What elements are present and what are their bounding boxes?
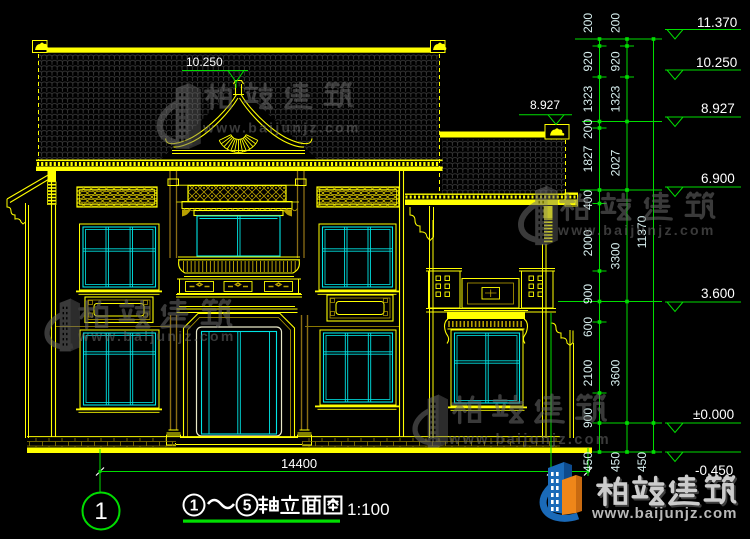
- svg-text:www.baijunjz.com: www.baijunjz.com: [202, 120, 361, 136]
- svg-text:450: 450: [609, 452, 623, 472]
- svg-text:1323: 1323: [581, 85, 595, 112]
- svg-text:3.600: 3.600: [701, 286, 735, 301]
- svg-text:3300: 3300: [609, 242, 623, 269]
- svg-text:11.370: 11.370: [697, 15, 737, 30]
- svg-text:±0.000: ±0.000: [693, 407, 734, 422]
- svg-text:1323: 1323: [609, 85, 623, 112]
- svg-text:www.baijunjz.com: www.baijunjz.com: [77, 328, 236, 344]
- svg-text:3600: 3600: [609, 359, 623, 386]
- svg-text:www.baijunjz.com: www.baijunjz.com: [591, 505, 737, 522]
- svg-text:200: 200: [581, 13, 595, 33]
- svg-text:1: 1: [190, 498, 199, 515]
- svg-text:1:100: 1:100: [347, 500, 390, 519]
- svg-text:8.927: 8.927: [701, 101, 735, 116]
- svg-text:450: 450: [581, 452, 595, 472]
- svg-text:900: 900: [581, 284, 595, 304]
- svg-text:920: 920: [581, 51, 595, 71]
- svg-text:1: 1: [94, 498, 107, 525]
- svg-text:200: 200: [581, 119, 595, 139]
- svg-text:2027: 2027: [609, 149, 623, 176]
- svg-text:www.baijunjz.com: www.baijunjz.com: [557, 222, 716, 238]
- svg-text:1827: 1827: [581, 145, 595, 172]
- svg-text:10.250: 10.250: [186, 55, 223, 69]
- svg-text:10.250: 10.250: [696, 55, 737, 70]
- svg-text:2100: 2100: [581, 359, 595, 386]
- svg-text:www.baijunjz.com: www.baijunjz.com: [448, 432, 611, 448]
- svg-text:450: 450: [635, 452, 649, 472]
- svg-text:200: 200: [609, 13, 623, 33]
- svg-text:8.927: 8.927: [530, 98, 560, 112]
- svg-text:6.900: 6.900: [701, 171, 735, 186]
- svg-text:600: 600: [581, 317, 595, 337]
- svg-text:920: 920: [609, 51, 623, 71]
- svg-text:14400: 14400: [281, 456, 317, 471]
- svg-text:5: 5: [243, 498, 252, 515]
